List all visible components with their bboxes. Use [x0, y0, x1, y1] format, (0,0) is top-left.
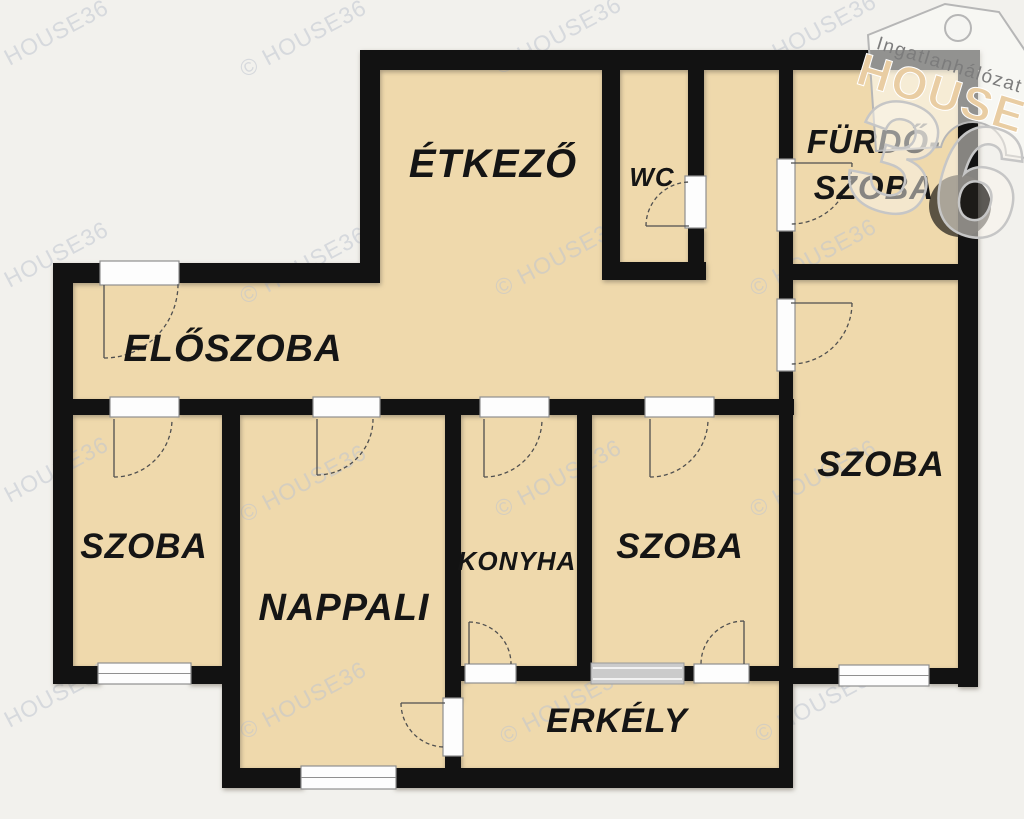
wall-erkely-top: [445, 666, 467, 681]
window-erkely: [591, 663, 684, 684]
wall-eloszoba-bottom: [177, 399, 315, 415]
door-frame-szoba-left: [110, 397, 179, 417]
wall-furdoszoba-bottom: [793, 264, 972, 280]
wall-eloszoba-top-right: [177, 263, 380, 283]
wall-erkely-top: [514, 666, 593, 681]
door-frame-szoba-erkely: [694, 664, 749, 683]
wall-szoba-left-bottom: [53, 666, 100, 684]
room-label-wc: WC: [629, 162, 675, 192]
room-label-eloszoba: ELŐSZOBA: [123, 326, 342, 370]
window-nappali: [301, 766, 396, 789]
wall-wc-left: [602, 63, 620, 262]
room-konyha: [452, 405, 584, 675]
room-label-konyha: KONYHA: [458, 546, 577, 576]
wall-furdoszoba-left: [779, 63, 793, 161]
wall-szoba-right-left: [779, 369, 793, 788]
wall-bottom-outer: [222, 768, 303, 788]
room-label-nappali: NAPPALI: [259, 587, 430, 629]
room-label-erkely: ERKÉLY: [546, 702, 690, 740]
door-frame-nappali: [313, 397, 380, 417]
floorplan-canvas: © HOUSE36 © HOUSE36 © HOUSE36 © HOUSE36 …: [0, 0, 1024, 819]
wall-corridor-szoba-divider: [779, 229, 793, 301]
window-szoba-left: [98, 663, 191, 684]
wall-wc-right: [688, 228, 704, 262]
logo-tag-hole: [945, 15, 971, 41]
wall-eloszoba-bottom: [378, 399, 482, 415]
wall-left-outer: [53, 263, 73, 684]
door-frame-konyha-erkely: [465, 664, 516, 683]
room-label-szoba-middle: SZOBA: [616, 527, 744, 566]
wall-eloszoba-bottom: [53, 399, 112, 415]
wall-nappali-right: [445, 754, 461, 788]
wall-eloszoba-bottom: [547, 399, 647, 415]
wall-szoba-right-bottom: [927, 668, 972, 684]
door-frame-szoba-right: [777, 299, 795, 371]
wall-wc-bottom: [602, 262, 706, 280]
room-label-szoba-left: SZOBA: [80, 527, 208, 566]
room-label-etkezo: ÉTKEZŐ: [409, 140, 577, 186]
door-frame-szoba-middle: [645, 397, 714, 417]
door-frame-konyha: [480, 397, 549, 417]
door-frame-wc: [685, 176, 706, 228]
wall-wc-right: [688, 63, 704, 176]
wall-szoba-right-bottom: [793, 668, 841, 684]
wall-szoba-nappali-divider: [222, 399, 240, 788]
wall-szoba-left-bottom: [189, 666, 240, 684]
room-label-szoba-right: SZOBA: [817, 445, 945, 484]
door-frame-entrance: [100, 261, 179, 285]
window-szoba-right: [839, 665, 929, 686]
door-frame-nappali-erkely: [443, 698, 463, 756]
door-frame-furdoszoba: [777, 159, 795, 231]
wall-etkezo-left: [360, 60, 380, 283]
wall-konyha-right: [577, 399, 592, 681]
